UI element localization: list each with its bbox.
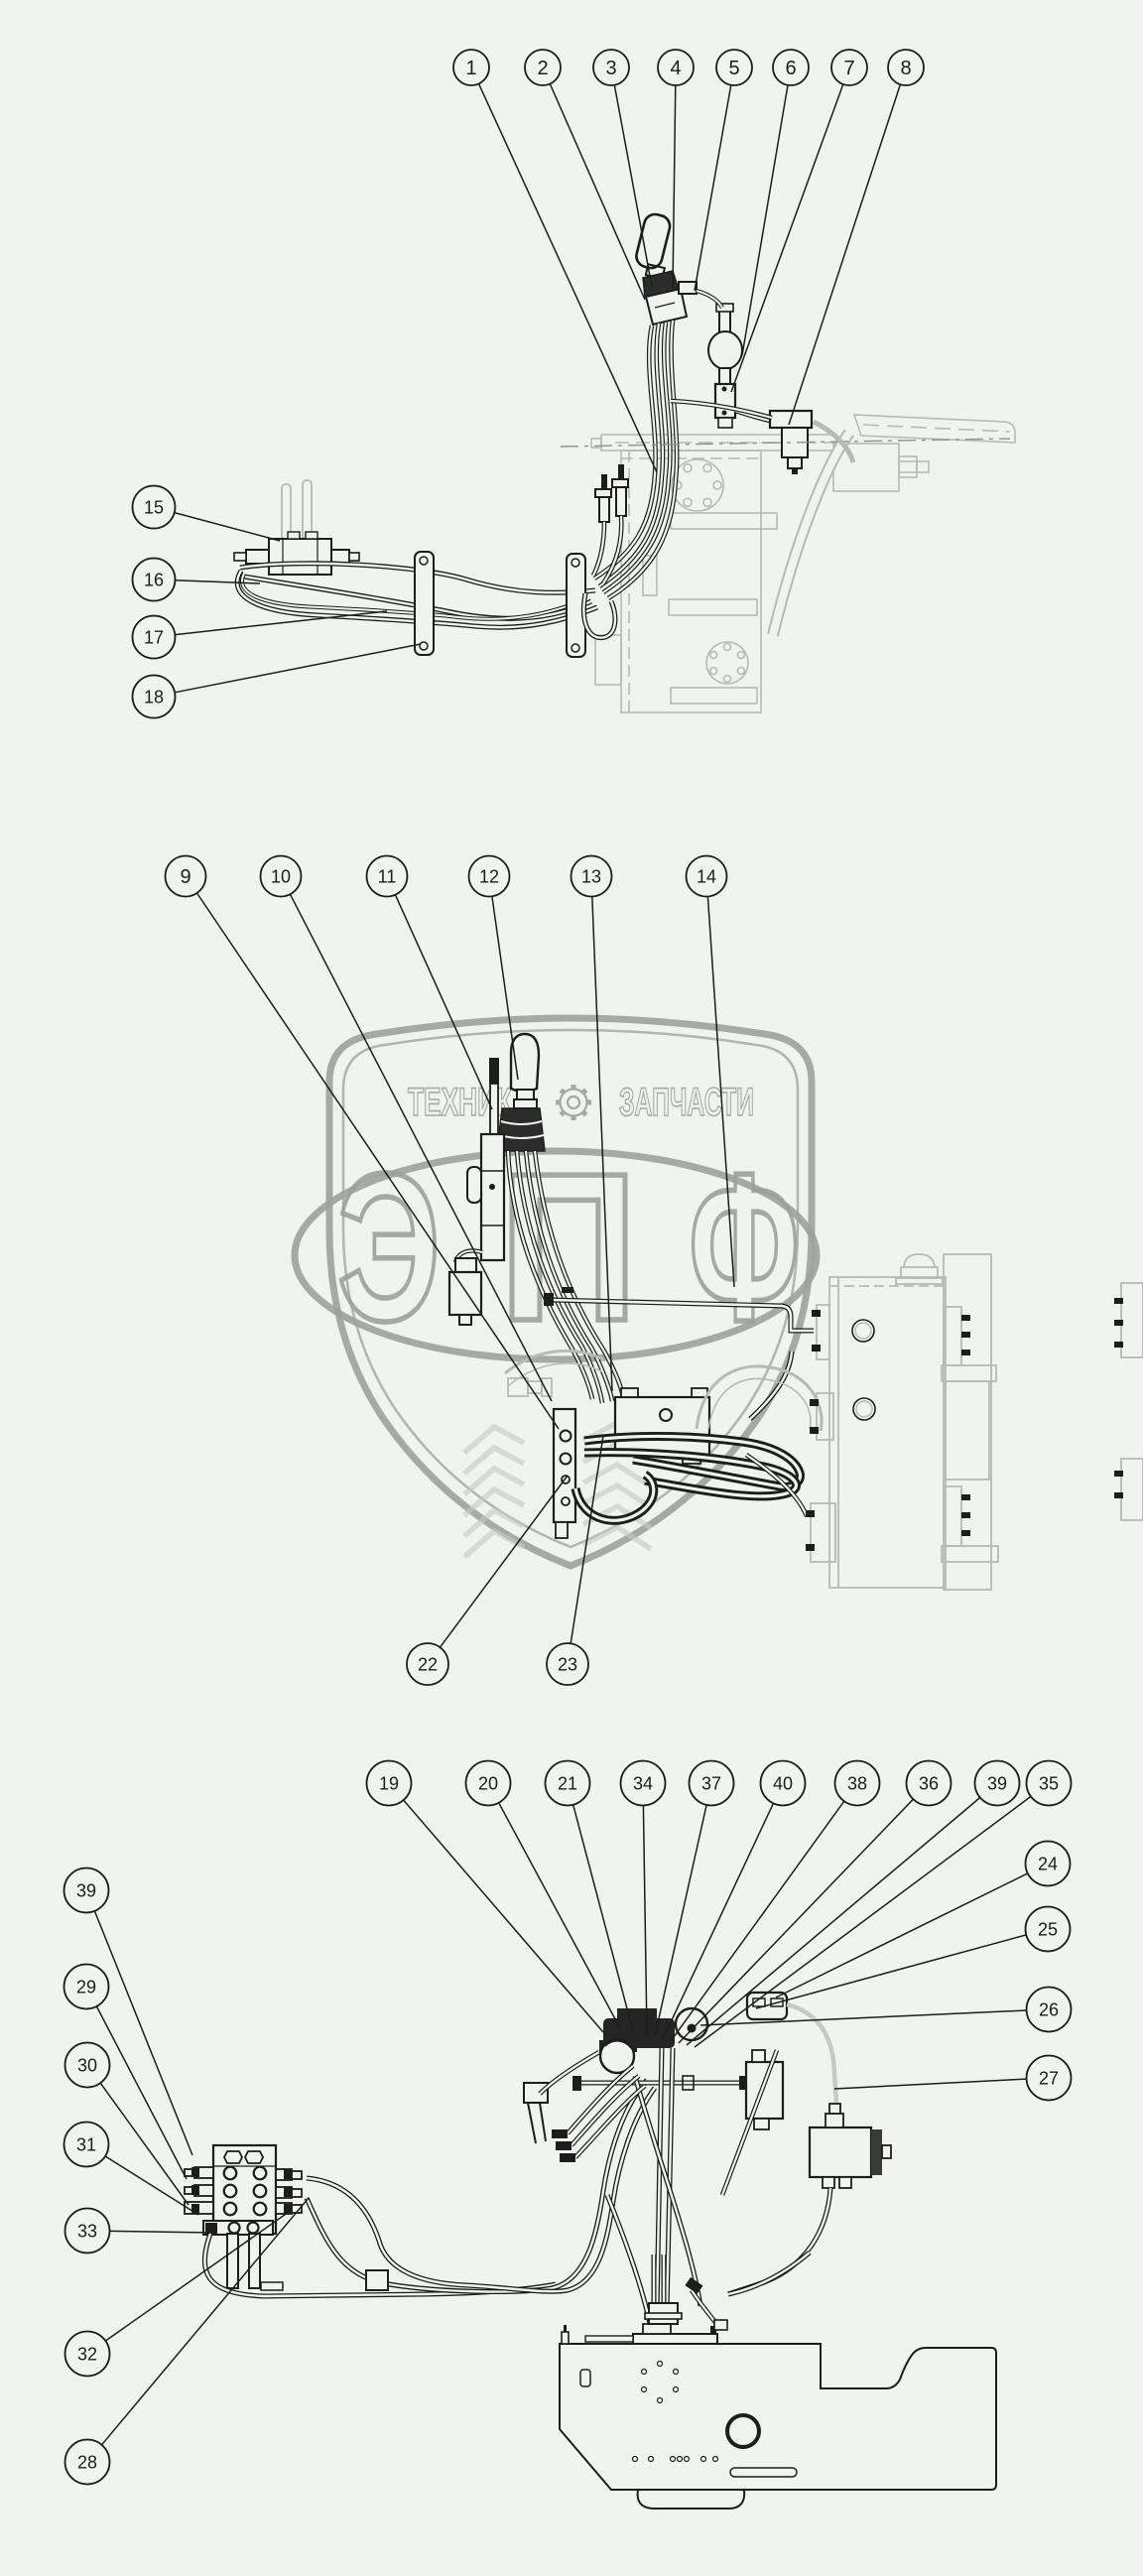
svg-text:29: 29	[76, 1977, 96, 1996]
svg-text:9: 9	[180, 866, 190, 888]
svg-text:18: 18	[144, 687, 164, 707]
svg-text:Э: Э	[337, 1129, 441, 1364]
svg-text:20: 20	[478, 1773, 498, 1793]
svg-text:39: 39	[76, 1880, 96, 1900]
svg-text:14: 14	[697, 866, 716, 886]
svg-text:11: 11	[378, 866, 397, 886]
svg-text:22: 22	[418, 1654, 438, 1674]
svg-text:33: 33	[77, 2221, 97, 2241]
svg-text:32: 32	[77, 2344, 97, 2364]
svg-text:6: 6	[785, 58, 796, 79]
svg-text:40: 40	[773, 1773, 793, 1793]
svg-text:4: 4	[670, 58, 681, 79]
svg-text:17: 17	[144, 627, 164, 647]
svg-text:1: 1	[465, 58, 476, 79]
svg-text:12: 12	[479, 866, 499, 886]
svg-text:7: 7	[843, 58, 854, 79]
svg-text:23: 23	[558, 1654, 577, 1674]
svg-text:16: 16	[144, 570, 164, 589]
svg-text:27: 27	[1039, 2068, 1059, 2088]
svg-text:19: 19	[379, 1773, 399, 1793]
svg-text:39: 39	[987, 1773, 1007, 1793]
svg-text:26: 26	[1039, 1999, 1059, 2019]
svg-text:35: 35	[1039, 1773, 1059, 1793]
svg-text:10: 10	[271, 866, 291, 886]
svg-text:25: 25	[1038, 1919, 1058, 1939]
svg-text:15: 15	[144, 497, 164, 517]
svg-text:Ф: Ф	[689, 1129, 800, 1364]
svg-text:21: 21	[558, 1773, 577, 1793]
svg-text:37: 37	[701, 1773, 721, 1793]
svg-text:ЗАПЧАСТИ: ЗАПЧАСТИ	[619, 1081, 754, 1124]
svg-text:36: 36	[919, 1773, 939, 1793]
svg-text:24: 24	[1038, 1854, 1058, 1873]
svg-text:5: 5	[728, 58, 739, 79]
svg-text:28: 28	[77, 2452, 97, 2472]
svg-text:8: 8	[900, 58, 911, 79]
svg-text:2: 2	[537, 58, 548, 79]
svg-text:31: 31	[76, 2134, 96, 2154]
svg-text:3: 3	[605, 58, 616, 79]
svg-text:30: 30	[77, 2055, 97, 2075]
svg-text:13: 13	[581, 866, 601, 886]
svg-text:34: 34	[633, 1773, 653, 1793]
svg-text:38: 38	[847, 1773, 867, 1793]
